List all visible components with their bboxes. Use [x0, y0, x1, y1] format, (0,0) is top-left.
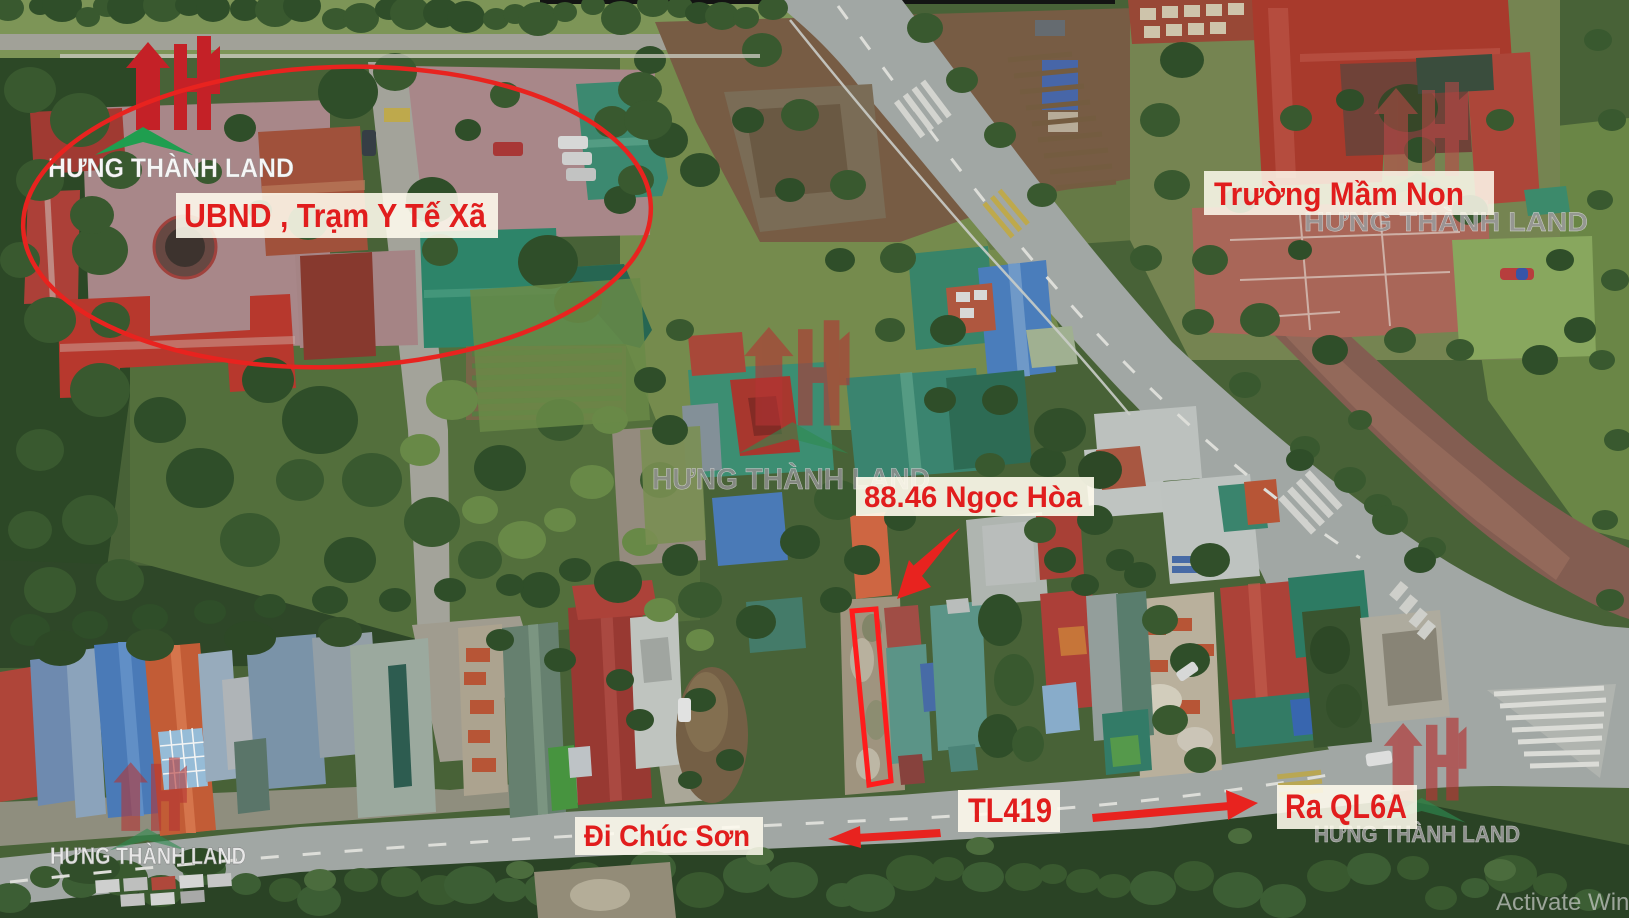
svg-text:Đi Chúc Sơn: Đi Chúc Sơn [584, 820, 750, 853]
svg-text:Ra QL6A: Ra QL6A [1285, 788, 1407, 826]
svg-text:UBND , Trạm Y Tế Xã: UBND , Trạm Y Tế Xã [184, 197, 487, 234]
svg-text:Activate Win: Activate Win [1496, 889, 1629, 916]
svg-text:Trường Mầm Non: Trường Mầm Non [1214, 176, 1464, 212]
svg-text:TL419: TL419 [968, 792, 1052, 830]
svg-text:HƯNG THÀNH LAND: HƯNG THÀNH LAND [50, 842, 246, 870]
svg-text:HƯNG THÀNH LAND: HƯNG THÀNH LAND [48, 152, 294, 183]
svg-text:88.46 Ngọc Hòa: 88.46 Ngọc Hòa [864, 481, 1082, 514]
